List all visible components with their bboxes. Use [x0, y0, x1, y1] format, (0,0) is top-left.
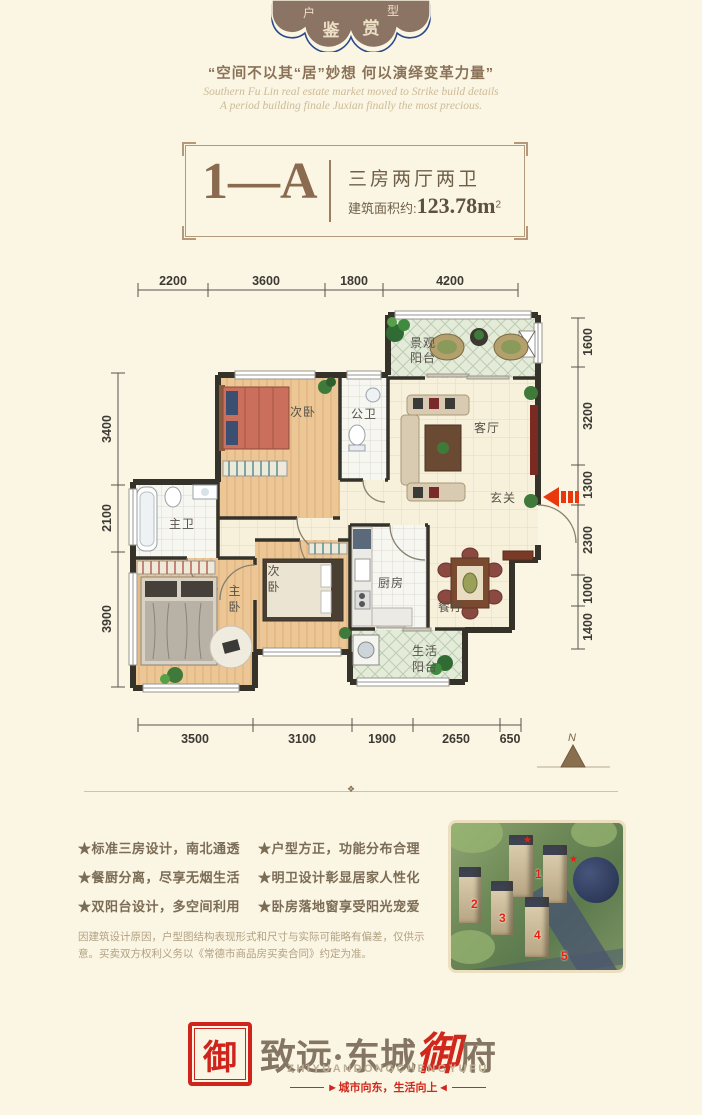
unit-area: 建筑面积约:123.78m2: [348, 193, 501, 219]
area-value: 123.78m: [417, 193, 496, 218]
feature-item: ★卧房落地窗享受阳光宠爱: [258, 896, 420, 915]
building-number-2: 2: [471, 897, 478, 911]
site-trees: [448, 930, 495, 964]
label-balcony-view-1: 景观: [410, 336, 436, 350]
dim-top-2: 3600: [252, 275, 280, 288]
slogan-line: [290, 1087, 324, 1088]
compass-n-label: N: [568, 732, 576, 744]
floor-bath-guest: [340, 375, 388, 480]
brand-subtitle: ZHIYUANDONGCHENGYUFU: [260, 1063, 516, 1075]
seal-character: 御: [194, 1028, 246, 1080]
dim-top-3: 1800: [340, 275, 368, 288]
building-number-1: 1: [535, 867, 542, 881]
feature-item: ★餐厨分离，尽享无烟生活: [78, 867, 240, 886]
building-number-5: 5: [561, 949, 568, 963]
header-badge: 户 型 鉴 赏: [269, 0, 433, 52]
corner-ornament: [514, 142, 528, 156]
dim-bottom-4: 2650: [442, 732, 470, 746]
label-dining: 餐厅: [438, 599, 464, 614]
dim-right-3: 1300: [581, 471, 595, 499]
label-bedroom-second-1: 次: [267, 564, 280, 578]
label-bath-guest: 公卫: [351, 407, 377, 421]
unit-title-box: 1—A 三房两厅两卫 建筑面积约:123.78m2: [185, 145, 525, 237]
site-tower: [491, 881, 513, 935]
dim-left-1: 3400: [100, 415, 114, 443]
flyer-page: 户 型 鉴 赏 “空间不以其“居”妙想 何以演绎变革力量” Southern F…: [0, 0, 702, 1115]
brand-slogan: 城市向东，生活向上: [339, 1079, 438, 1095]
label-balcony-view-2: 阳台: [410, 350, 436, 365]
badge-char-jian: 鉴: [322, 20, 341, 40]
building-number-4: 4: [534, 928, 541, 942]
divider-ornament-icon: ❖: [343, 784, 359, 795]
site-tower: [543, 845, 567, 903]
site-dome-building: [573, 857, 619, 903]
dim-right-6: 1400: [581, 613, 595, 641]
feature-item: ★双阳台设计，多空间利用: [78, 896, 240, 915]
label-balcony-life-1: 生活: [412, 644, 438, 658]
area-label: 建筑面积约:: [348, 201, 417, 216]
site-tower: [459, 867, 481, 923]
compass-icon: N: [537, 732, 610, 767]
dim-bottom-5: 650: [500, 732, 521, 746]
site-trees: [571, 820, 617, 847]
brand-seal-icon: 御: [188, 1022, 252, 1086]
badge-shape: [272, 0, 430, 47]
dim-top-4: 4200: [436, 275, 464, 288]
dim-bottom-2: 3100: [288, 732, 316, 746]
label-kitchen: 厨房: [378, 575, 404, 590]
dim-bottom-1: 3500: [181, 732, 209, 746]
badge-char-shang: 赏: [363, 18, 380, 38]
area-sup: 2: [495, 200, 501, 211]
unit-code: 1—A: [202, 152, 318, 211]
tagline-chinese: “空间不以其“居”妙想 何以演绎变革力量”: [0, 62, 702, 83]
feature-item: ★明卫设计彰显居家人性化: [258, 867, 420, 886]
dim-left-2: 2100: [100, 504, 114, 532]
site-plan: ★ ★ 1 2 3 4 5: [448, 820, 626, 973]
site-trees: [448, 820, 503, 853]
slogan-line: [452, 1087, 486, 1088]
brand-slogan-row: ▶ 城市向东，生活向上 ◀: [250, 1079, 526, 1095]
dim-right-1: 1600: [581, 328, 595, 356]
badge-char-hu: 户: [303, 5, 315, 20]
feature-item: ★标准三房设计，南北通透: [78, 838, 240, 857]
corner-ornament: [182, 226, 196, 240]
floor-plan: 2200 3600 1800 4200 3400 2100 3900 1600 …: [95, 275, 620, 800]
unit-type: 三房两厅两卫: [348, 164, 480, 191]
badge-char-xing: 型: [387, 4, 399, 18]
entry-arrow-icon: [543, 487, 579, 507]
dim-right-2: 3200: [581, 402, 595, 430]
building-number-3: 3: [499, 911, 506, 925]
dim-right-4: 2300: [581, 526, 595, 554]
feature-item: ★户型方正，功能分布合理: [258, 838, 420, 857]
label-living: 客厅: [474, 420, 500, 435]
label-bedroom-master-1: 主: [228, 584, 241, 598]
dim-bottom-3: 1900: [368, 732, 396, 746]
dim-left-3: 3900: [100, 605, 114, 633]
dim-top-1: 2200: [159, 275, 187, 288]
corner-ornament: [182, 142, 196, 156]
arrow-left-icon: ◀: [441, 1083, 447, 1092]
site-tower: [525, 897, 549, 957]
title-divider: [329, 160, 331, 222]
label-bath-master: 主卫: [169, 517, 195, 531]
label-bedroom-second-2: 卧: [267, 580, 280, 594]
star-icon: ★: [523, 835, 532, 846]
tagline-english-line1: Southern Fu Lin real estate market moved…: [0, 86, 702, 98]
label-bedroom-master-2: 卧: [228, 600, 241, 614]
entry-door-arc: [538, 505, 576, 543]
label-entry: 玄关: [490, 490, 516, 505]
dim-right-5: 1000: [581, 576, 595, 604]
disclaimer-text: 因建筑设计原因，户型图结构表现形式和尺寸与实际可能略有偏差，仅供示意。买卖双方权…: [78, 929, 436, 963]
star-icon: ★: [569, 854, 578, 865]
label-balcony-life-2: 阳台: [412, 659, 438, 674]
tagline-english-line2: A period building finale Juxian finally …: [0, 100, 702, 112]
arrow-right-icon: ▶: [329, 1083, 335, 1092]
corner-ornament: [514, 226, 528, 240]
label-bedroom-top: 次卧: [290, 405, 316, 419]
